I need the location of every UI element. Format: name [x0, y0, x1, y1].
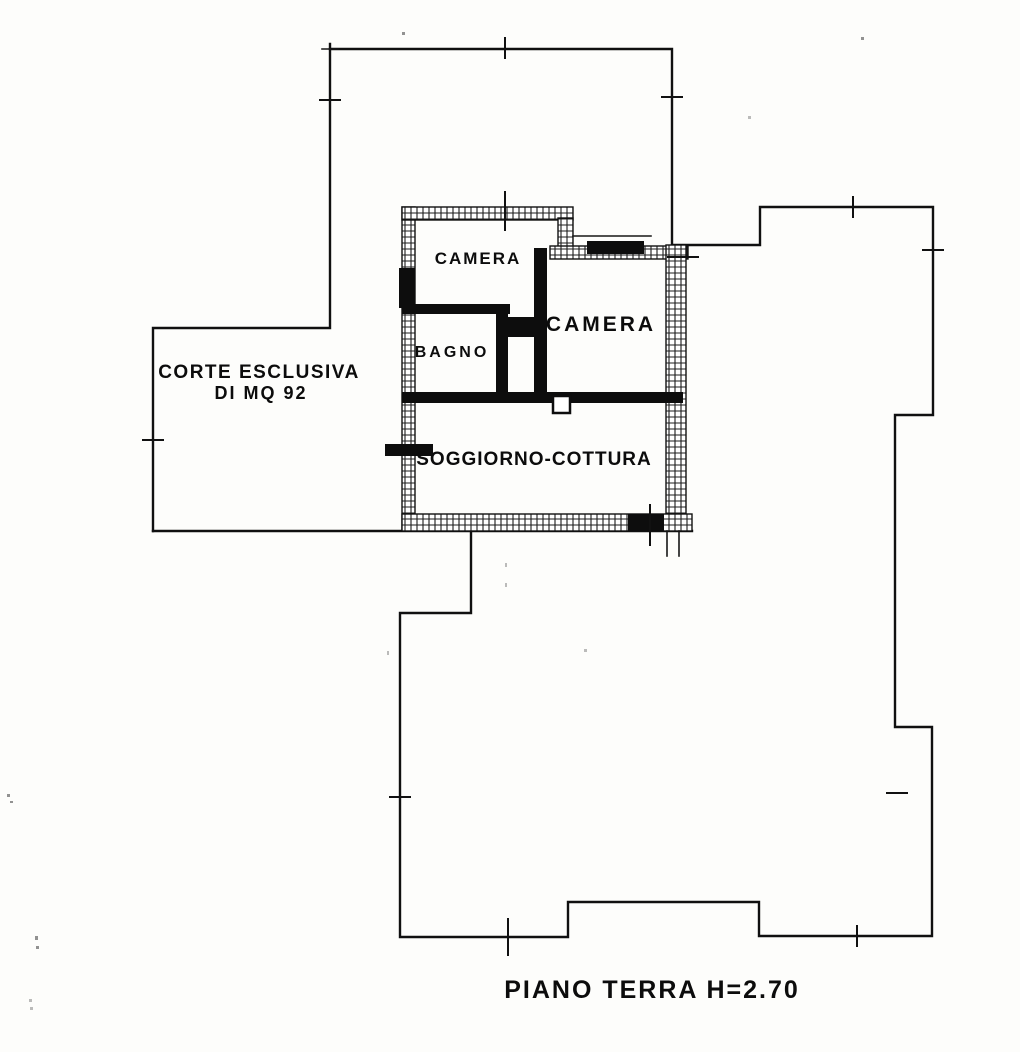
labels: CAMERA BAGNO CAMERA SOGGIORNO-COTTURA CO…	[158, 249, 800, 1004]
room-label-soggiorno: SOGGIORNO-COTTURA	[416, 449, 652, 470]
wall-top	[402, 207, 573, 220]
window-camera1-left	[399, 268, 415, 308]
building-outline	[153, 44, 933, 937]
door-entry-bottom	[628, 514, 664, 531]
plan-caption: PIANO TERRA H=2.70	[504, 976, 800, 1004]
room-label-bagno: BAGNO	[415, 344, 490, 361]
wall-left	[402, 207, 415, 531]
door-camera2-swing	[553, 396, 570, 413]
wall-top-step	[558, 218, 573, 250]
courtyard-label-line1: CORTE ESCLUSIVA	[158, 362, 360, 383]
window-camera2-top	[587, 241, 644, 254]
scanned-floorplan-page: CAMERA BAGNO CAMERA SOGGIORNO-COTTURA CO…	[0, 0, 1020, 1052]
room-label-camera-2: CAMERA	[546, 313, 656, 336]
openings	[385, 236, 664, 531]
wall-camera1-bagno	[402, 304, 510, 314]
outline-right-wing	[330, 49, 933, 937]
door-corridor-leaf	[505, 317, 541, 337]
wall-soggiorno-top	[402, 392, 683, 403]
wall-right	[666, 245, 686, 531]
tick-marks	[143, 38, 943, 955]
courtyard-label-line2: DI MQ 92	[214, 383, 307, 403]
room-label-camera-1: CAMERA	[435, 249, 522, 268]
floor-plan-drawing: CAMERA BAGNO CAMERA SOGGIORNO-COTTURA CO…	[0, 0, 1020, 1052]
outline-courtyard	[153, 44, 330, 531]
